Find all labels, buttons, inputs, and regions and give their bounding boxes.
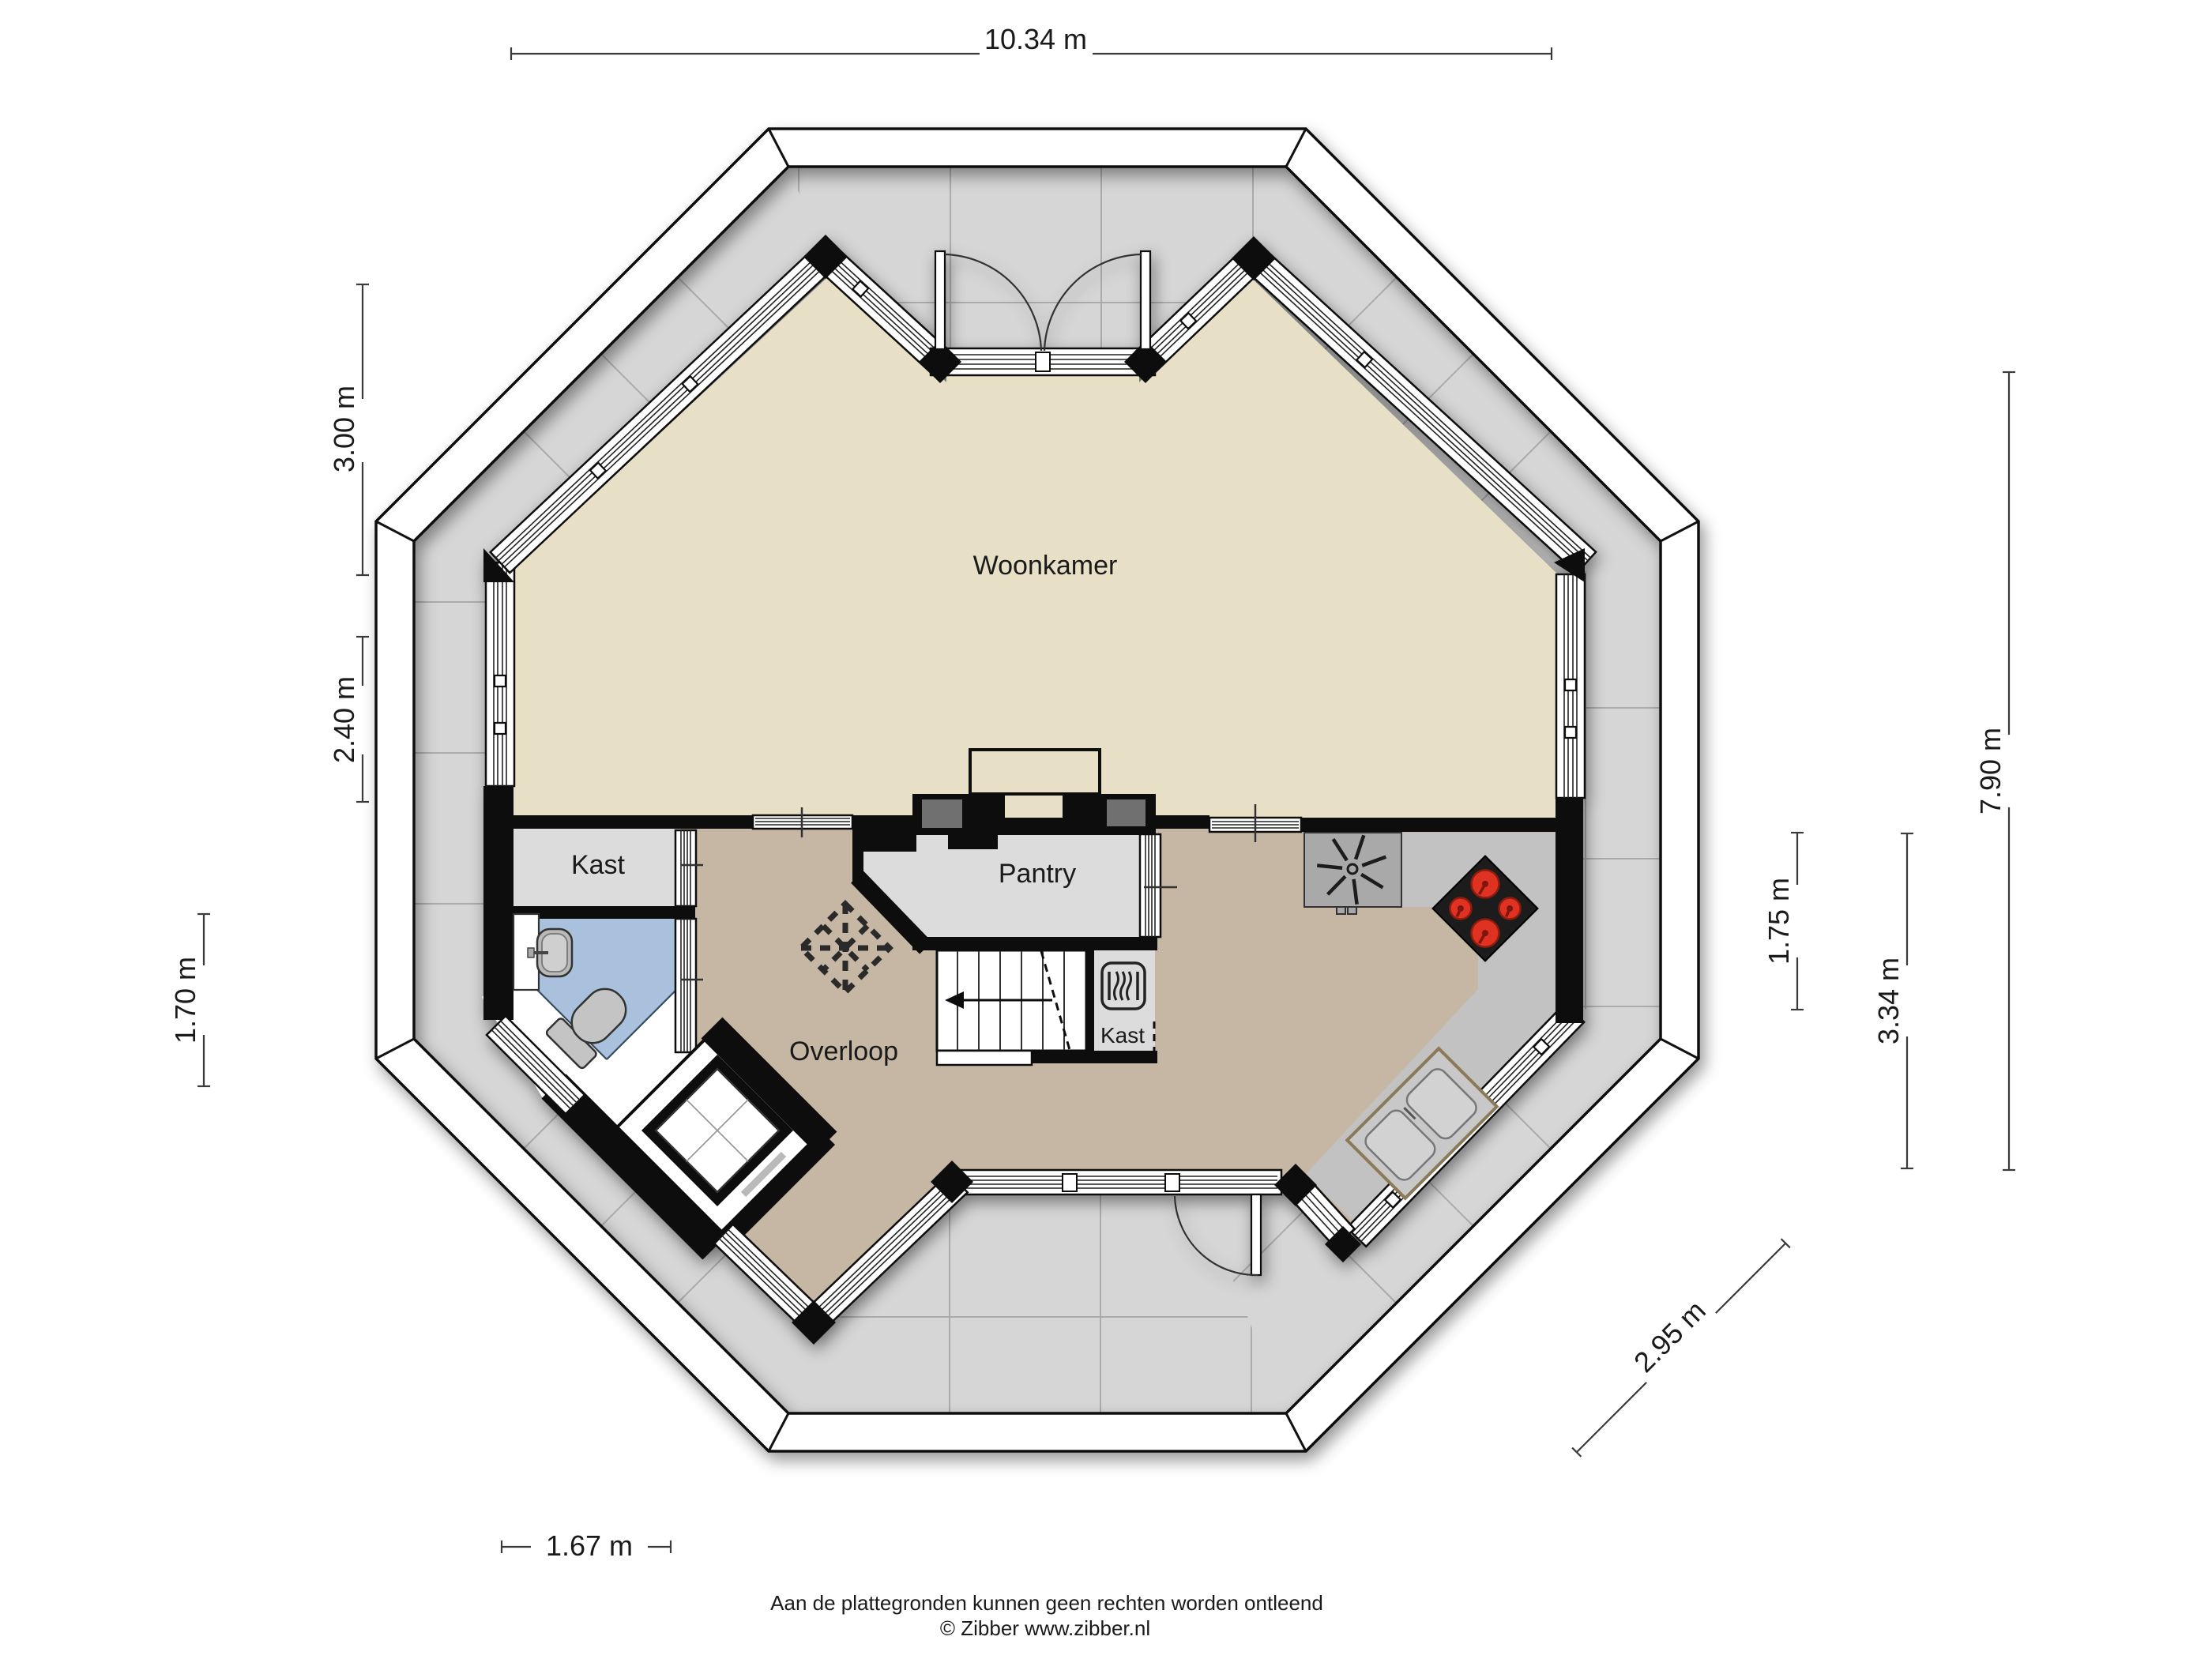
- svg-text:© Zibber www.zibber.nl: © Zibber www.zibber.nl: [940, 1616, 1150, 1640]
- svg-text:Pantry: Pantry: [999, 859, 1076, 889]
- svg-text:1.67 m: 1.67 m: [546, 1529, 633, 1562]
- svg-text:3.34 m: 3.34 m: [1872, 957, 1905, 1044]
- svg-text:1.70 m: 1.70 m: [169, 957, 201, 1044]
- svg-text:2.40 m: 2.40 m: [328, 676, 360, 763]
- svg-text:7.90 m: 7.90 m: [1974, 728, 2007, 814]
- svg-text:Kast: Kast: [1100, 1023, 1145, 1048]
- svg-text:1.75 m: 1.75 m: [1762, 878, 1795, 965]
- svg-text:Kast: Kast: [571, 850, 626, 880]
- svg-text:Overloop: Overloop: [789, 1036, 898, 1066]
- svg-text:Woonkamer: Woonkamer: [973, 551, 1118, 581]
- svg-text:3.00 m: 3.00 m: [328, 386, 360, 472]
- svg-text:10.34 m: 10.34 m: [984, 23, 1087, 55]
- svg-text:Aan de plattegronden kunnen ge: Aan de plattegronden kunnen geen rechten…: [770, 1591, 1323, 1615]
